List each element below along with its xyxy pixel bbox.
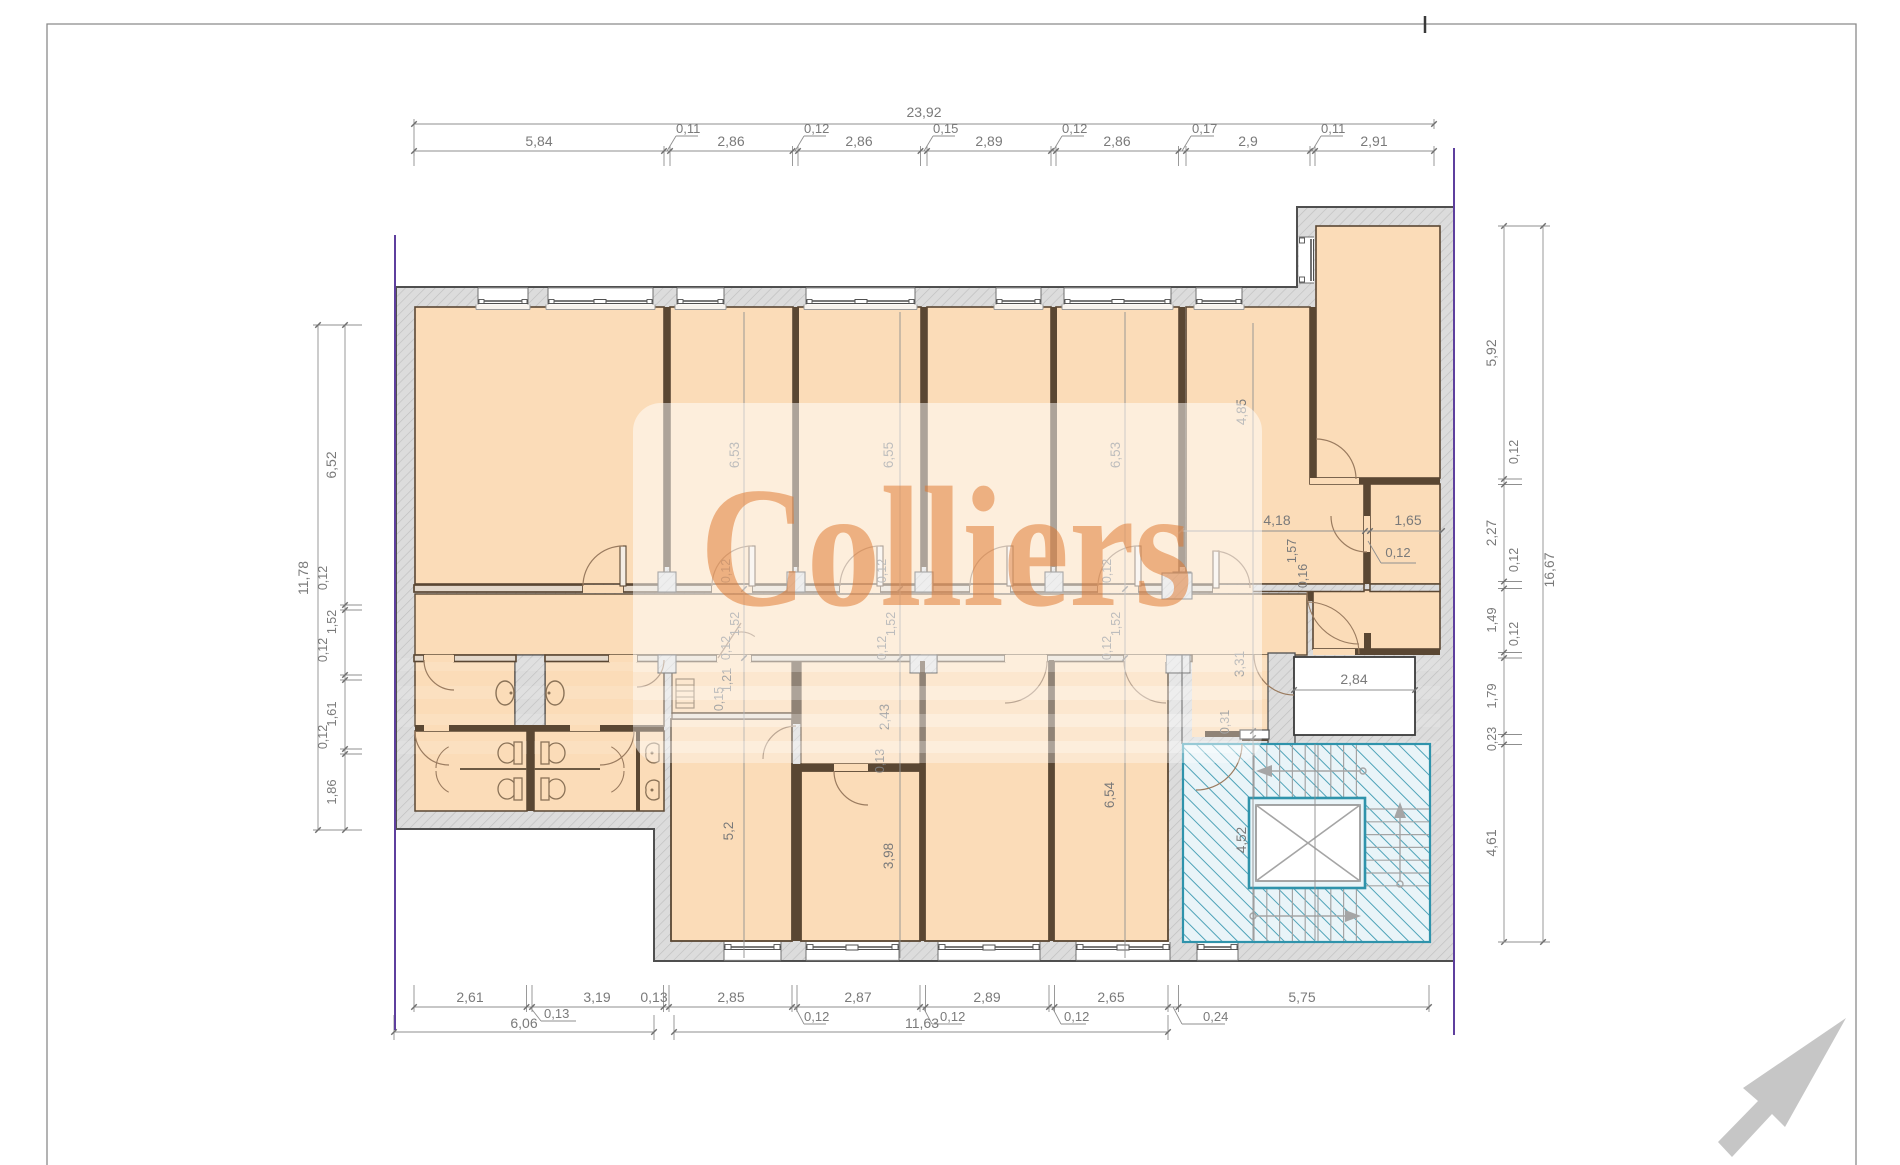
svg-text:4,18: 4,18 <box>1263 512 1290 528</box>
svg-text:6,52: 6,52 <box>323 451 339 478</box>
svg-text:2,87: 2,87 <box>844 989 871 1005</box>
svg-text:4,52: 4,52 <box>1234 827 1249 853</box>
svg-text:11,63: 11,63 <box>905 1015 939 1031</box>
svg-text:Colliers: Colliers <box>700 453 1192 643</box>
svg-text:2,61: 2,61 <box>456 989 483 1005</box>
svg-text:2,91: 2,91 <box>1360 133 1387 149</box>
svg-text:0,12: 0,12 <box>316 725 330 749</box>
svg-text:3,19: 3,19 <box>583 989 610 1005</box>
svg-text:0,12: 0,12 <box>804 121 829 136</box>
svg-text:1,65: 1,65 <box>1394 512 1421 528</box>
svg-text:2,65: 2,65 <box>1097 989 1124 1005</box>
svg-text:0,12: 0,12 <box>1385 545 1410 560</box>
svg-text:2,84: 2,84 <box>1340 671 1367 687</box>
svg-text:0,11: 0,11 <box>1321 121 1345 136</box>
svg-text:1,57: 1,57 <box>1285 539 1299 563</box>
svg-text:0,13: 0,13 <box>544 1006 569 1021</box>
svg-text:2,89: 2,89 <box>975 133 1002 149</box>
svg-text:1,61: 1,61 <box>324 701 339 726</box>
svg-text:0,16: 0,16 <box>1296 564 1310 588</box>
svg-text:0,13: 0,13 <box>640 989 667 1005</box>
svg-text:2,9: 2,9 <box>1238 133 1258 149</box>
svg-text:11,78: 11,78 <box>295 561 311 595</box>
svg-text:0,23: 0,23 <box>1485 727 1499 751</box>
svg-text:2,86: 2,86 <box>1103 133 1130 149</box>
svg-text:0,12: 0,12 <box>316 566 330 590</box>
svg-text:5,75: 5,75 <box>1288 989 1315 1005</box>
svg-text:0,17: 0,17 <box>1192 121 1217 136</box>
svg-text:23,92: 23,92 <box>906 104 941 120</box>
svg-text:0,12: 0,12 <box>940 1009 965 1024</box>
svg-text:2,27: 2,27 <box>1484 520 1499 546</box>
svg-text:0,12: 0,12 <box>1062 121 1087 136</box>
svg-text:0,11: 0,11 <box>676 121 700 136</box>
svg-text:0,12: 0,12 <box>1064 1009 1089 1024</box>
svg-text:6,06: 6,06 <box>510 1015 537 1031</box>
svg-text:0,12: 0,12 <box>804 1009 829 1024</box>
svg-text:1,49: 1,49 <box>1484 607 1499 632</box>
svg-text:1,52: 1,52 <box>325 610 339 634</box>
svg-text:1,79: 1,79 <box>1484 683 1499 708</box>
svg-text:2,89: 2,89 <box>973 989 1000 1005</box>
svg-text:5,92: 5,92 <box>1483 339 1499 366</box>
svg-text:2,85: 2,85 <box>717 989 744 1005</box>
svg-text:5,84: 5,84 <box>525 133 552 149</box>
svg-text:0,12: 0,12 <box>316 638 330 662</box>
svg-text:6,54: 6,54 <box>1102 781 1117 808</box>
svg-text:2,86: 2,86 <box>845 133 872 149</box>
svg-text:1,86: 1,86 <box>324 779 339 804</box>
svg-text:0,12: 0,12 <box>1507 548 1521 572</box>
svg-text:0,12: 0,12 <box>1507 622 1521 646</box>
svg-text:4,61: 4,61 <box>1483 829 1499 856</box>
svg-text:16,67: 16,67 <box>1541 552 1557 587</box>
svg-text:2,86: 2,86 <box>717 133 744 149</box>
svg-text:5,2: 5,2 <box>721 822 736 841</box>
svg-text:3,98: 3,98 <box>881 843 896 869</box>
svg-text:0,15: 0,15 <box>933 121 958 136</box>
svg-text:0,24: 0,24 <box>1203 1009 1228 1024</box>
svg-text:0,12: 0,12 <box>1507 440 1521 464</box>
